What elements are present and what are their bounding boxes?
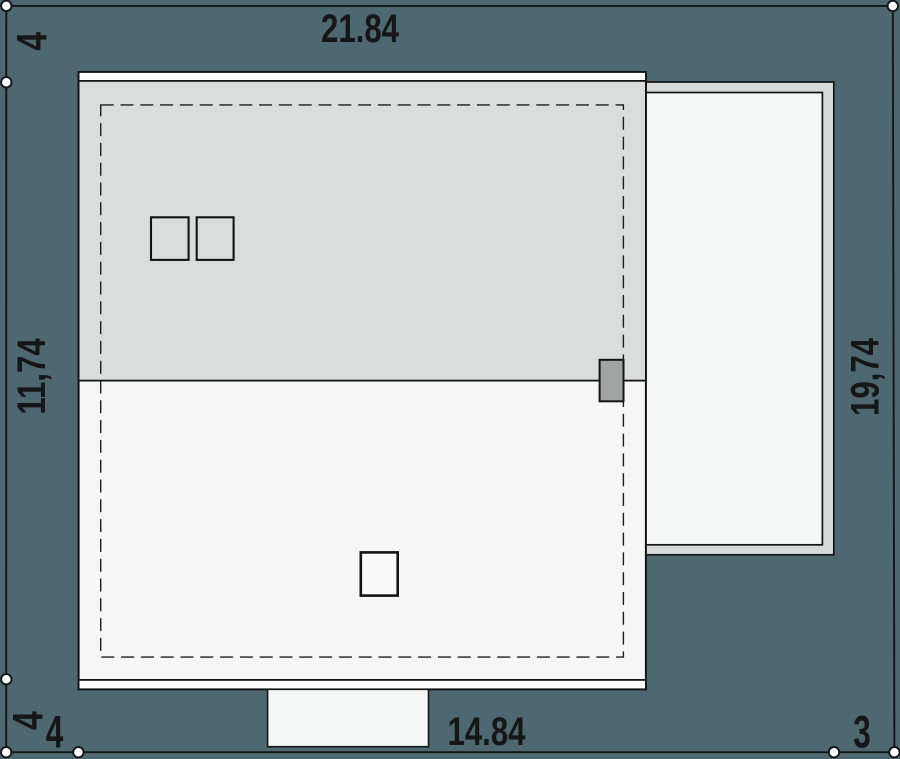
- svg-text:3: 3: [853, 708, 871, 758]
- svg-text:19,74: 19,74: [843, 338, 888, 416]
- svg-text:4: 4: [9, 31, 57, 50]
- svg-text:14.84: 14.84: [447, 709, 525, 754]
- svg-text:4: 4: [46, 708, 64, 758]
- svg-text:11,74: 11,74: [9, 338, 54, 414]
- svg-text:21.84: 21.84: [321, 6, 399, 51]
